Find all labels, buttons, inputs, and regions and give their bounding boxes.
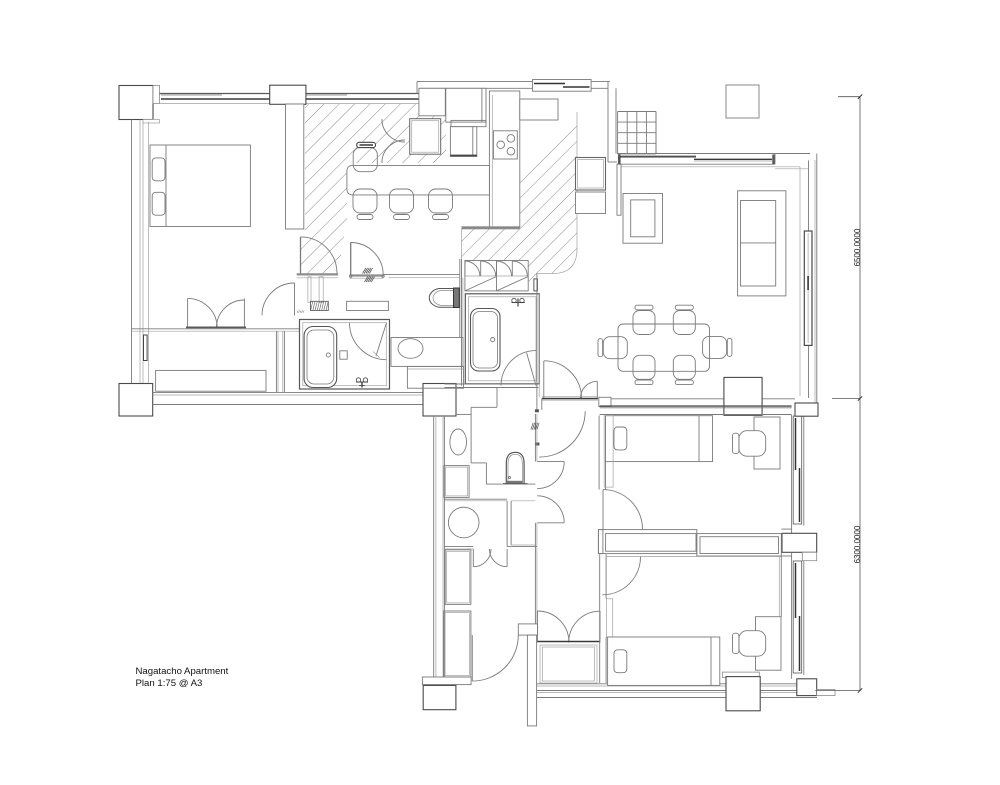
svg-text:6300.0000: 6300.0000	[853, 525, 862, 563]
svg-text:6500.0000: 6500.0000	[853, 228, 862, 266]
svg-text:Plan 1:75 @ A3: Plan 1:75 @ A3	[136, 678, 203, 689]
svg-text:Nagatacho Apartment: Nagatacho Apartment	[136, 666, 229, 677]
